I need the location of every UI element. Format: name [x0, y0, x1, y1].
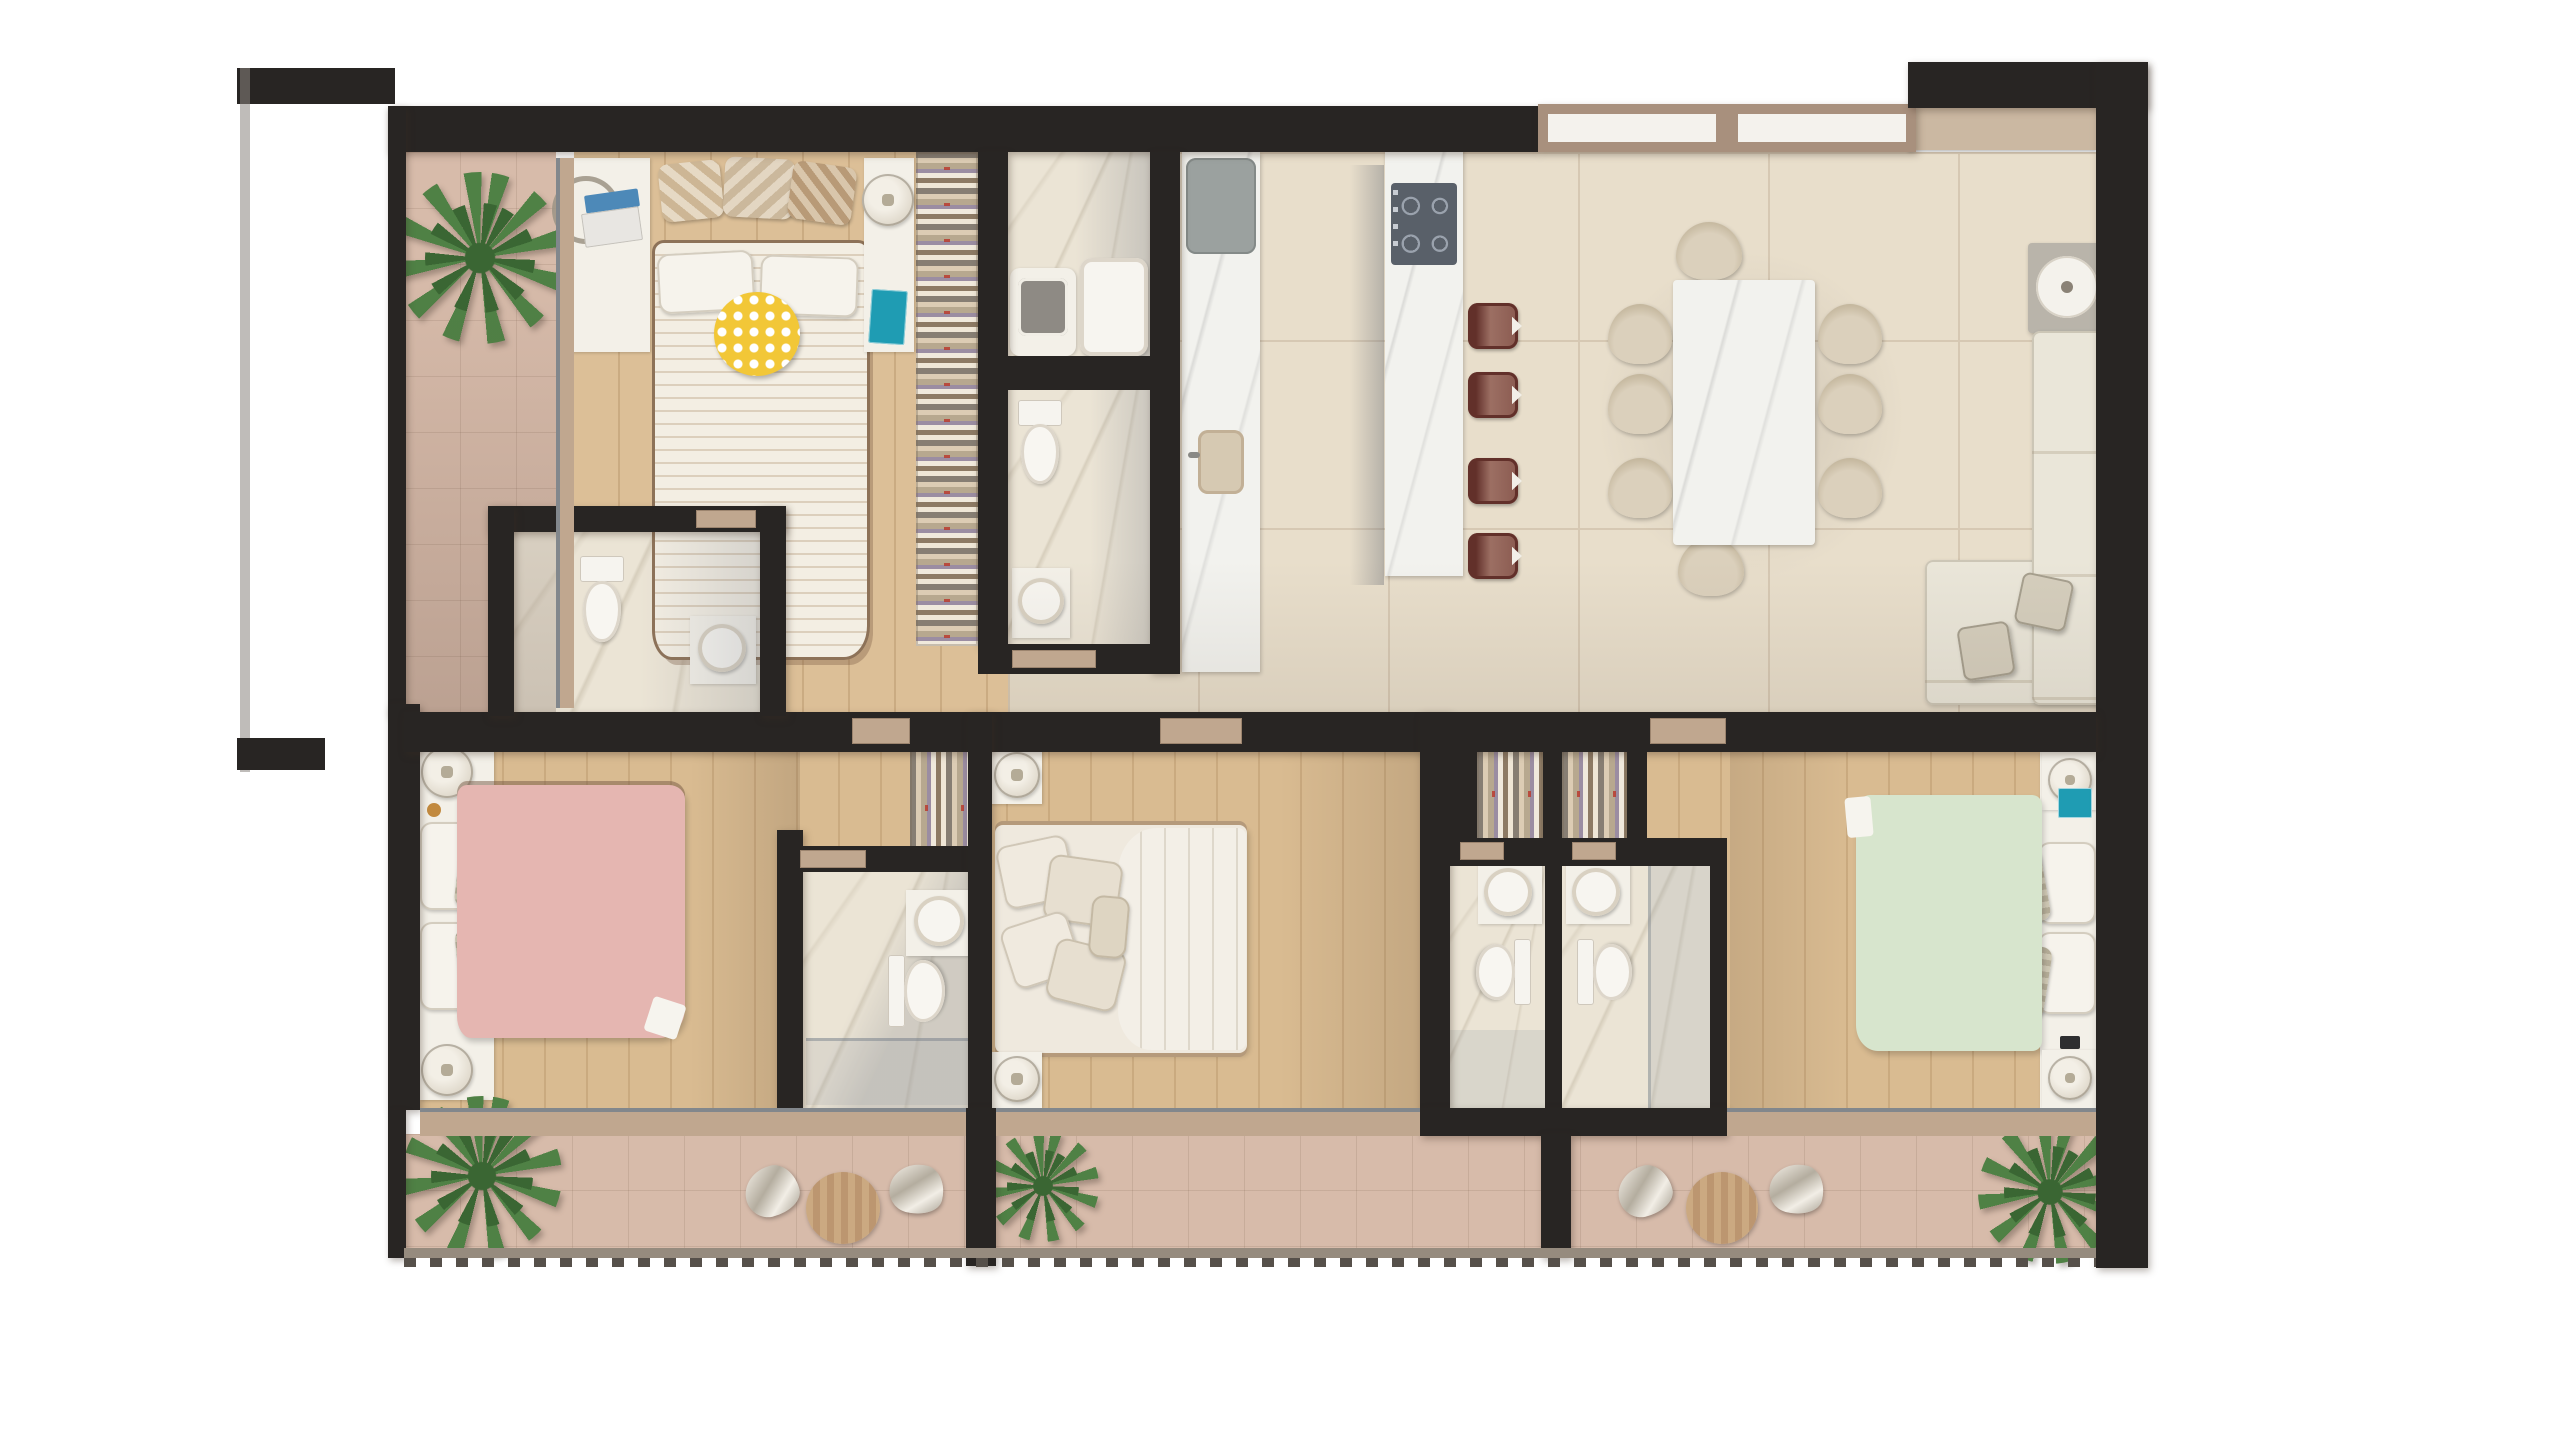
- terrace-sliding-door: [420, 1108, 966, 1136]
- door-threshold-green-bedroom: [1650, 718, 1726, 744]
- door-threshold-pink-bath: [800, 850, 866, 868]
- terrace-stone-floor: [404, 1134, 2096, 1248]
- green-duvet-fold: [1844, 796, 1873, 838]
- terrace-plant: [987, 1130, 1099, 1242]
- floor-plan: [0, 0, 2560, 1440]
- door-threshold-powder: [696, 510, 756, 528]
- left-wall-lower: [388, 704, 420, 1110]
- shower-glass: [806, 1038, 970, 1041]
- terrace-sliding-door: [996, 1108, 1420, 1136]
- terrace-sliding-door: [1727, 1108, 2096, 1136]
- terrace-railing: [404, 1248, 2096, 1258]
- kitchen-faucet: [1188, 452, 1200, 458]
- long-dividing-wall: [404, 712, 2096, 752]
- pink-bath-toilet: [888, 948, 946, 1034]
- top-window-pane: [1548, 114, 1716, 142]
- balcony-plant: [394, 172, 566, 344]
- pink-bed-duvet: [457, 785, 685, 1038]
- top-window-pane: [1738, 114, 1906, 142]
- door-threshold-wc: [1012, 650, 1096, 668]
- bar-stool: [1468, 533, 1518, 579]
- bath-right-shower-glass: [1648, 866, 1651, 1108]
- wc-toilet: [1014, 400, 1066, 486]
- master-east-wall: [978, 152, 1008, 646]
- terrace-table: [806, 1172, 880, 1244]
- powder-toilet: [576, 556, 628, 644]
- bath-south-wall: [1420, 1108, 1727, 1136]
- pink-bath-sink: [914, 896, 964, 946]
- kitchen-sink: [1198, 430, 1244, 494]
- bathroom-right-closet-rack: [1562, 748, 1627, 840]
- kitchen-west-wall: [1150, 152, 1180, 672]
- top-wall: [388, 106, 1538, 152]
- right-wall: [2096, 62, 2148, 1268]
- closet-frame-wall: [1543, 712, 1562, 838]
- remote-control: [2060, 1036, 2080, 1049]
- powder-east-wall: [760, 506, 786, 716]
- bed-pillow-patterned: [786, 160, 857, 226]
- left-wall: [388, 106, 406, 716]
- exterior-wall-stub: [237, 68, 395, 104]
- master-closet-rack: [916, 152, 978, 646]
- decor-tray: [427, 803, 441, 817]
- yellow-polkadot-pillow: [714, 292, 800, 376]
- sofa-pillow: [2013, 571, 2075, 633]
- door-threshold-bath-left: [1460, 842, 1504, 860]
- balcony-sliding-door: [556, 158, 574, 708]
- bath-right-sink: [1572, 868, 1620, 916]
- cooktop-knobs: [1393, 190, 1398, 256]
- bar-stool: [1468, 458, 1518, 504]
- mid-divider-wall: [968, 712, 992, 1108]
- bar-stool: [1468, 372, 1518, 418]
- mid-bed-sheet: [1118, 828, 1246, 1050]
- bed-pillow-patterned: [657, 159, 725, 223]
- terrace-divider: [966, 1108, 996, 1266]
- door-threshold-middle-bedroom: [1160, 718, 1242, 744]
- green-nightstand-lamp: [2048, 1056, 2092, 1100]
- mid-nightstand-lamp: [994, 1056, 1040, 1102]
- bed-pillow-patterned: [722, 156, 795, 220]
- cooktop: [1391, 183, 1457, 265]
- bathtub: [1080, 258, 1148, 356]
- sofa-long-section: [2032, 331, 2104, 705]
- window-ledge: [1908, 108, 2096, 150]
- powder-west-wall: [488, 506, 514, 716]
- sofa-pillow: [1956, 620, 2016, 681]
- master-nightstand-lamp: [862, 174, 914, 226]
- pink-nightstand-lamp: [421, 1044, 473, 1096]
- dining-table: [1673, 280, 1815, 545]
- bath-center-wall: [1545, 838, 1562, 1108]
- fridge: [1186, 158, 1256, 254]
- decor-disc-center: [2061, 281, 2073, 293]
- wc-sink: [1018, 578, 1064, 624]
- bath-divider-wall: [1008, 356, 1150, 390]
- powder-sink: [698, 624, 746, 672]
- bath-right-toilet: [1577, 933, 1633, 1011]
- green-bed-duvet: [1856, 795, 2042, 1051]
- bath-left-toilet: [1475, 933, 1531, 1011]
- exterior-boundary-line: [240, 68, 250, 772]
- bath-east-wall: [1710, 838, 1727, 1108]
- terrace-table: [1686, 1172, 1758, 1244]
- teal-art-card: [2058, 788, 2092, 818]
- midbed-east-wall: [1420, 712, 1450, 1108]
- terrace-divider: [1541, 1134, 1571, 1258]
- terrace-left-wall: [388, 1110, 406, 1258]
- vanity-sink: [1018, 278, 1068, 336]
- closet-frame-wall: [1627, 712, 1647, 838]
- bar-stool: [1468, 303, 1518, 349]
- mid-bed-bolster: [1087, 894, 1130, 959]
- door-threshold-pink-bedroom: [852, 718, 910, 744]
- closet-frame-wall: [1450, 712, 1477, 838]
- bathroom-left-closet-rack: [1477, 748, 1543, 840]
- teal-book: [868, 289, 908, 345]
- exterior-wall-stub: [237, 738, 325, 770]
- terrace-railing-ticks: [404, 1258, 2096, 1267]
- mid-nightstand-lamp: [994, 752, 1040, 798]
- bath-left-sink: [1484, 868, 1532, 916]
- door-threshold-bath-right: [1572, 842, 1616, 860]
